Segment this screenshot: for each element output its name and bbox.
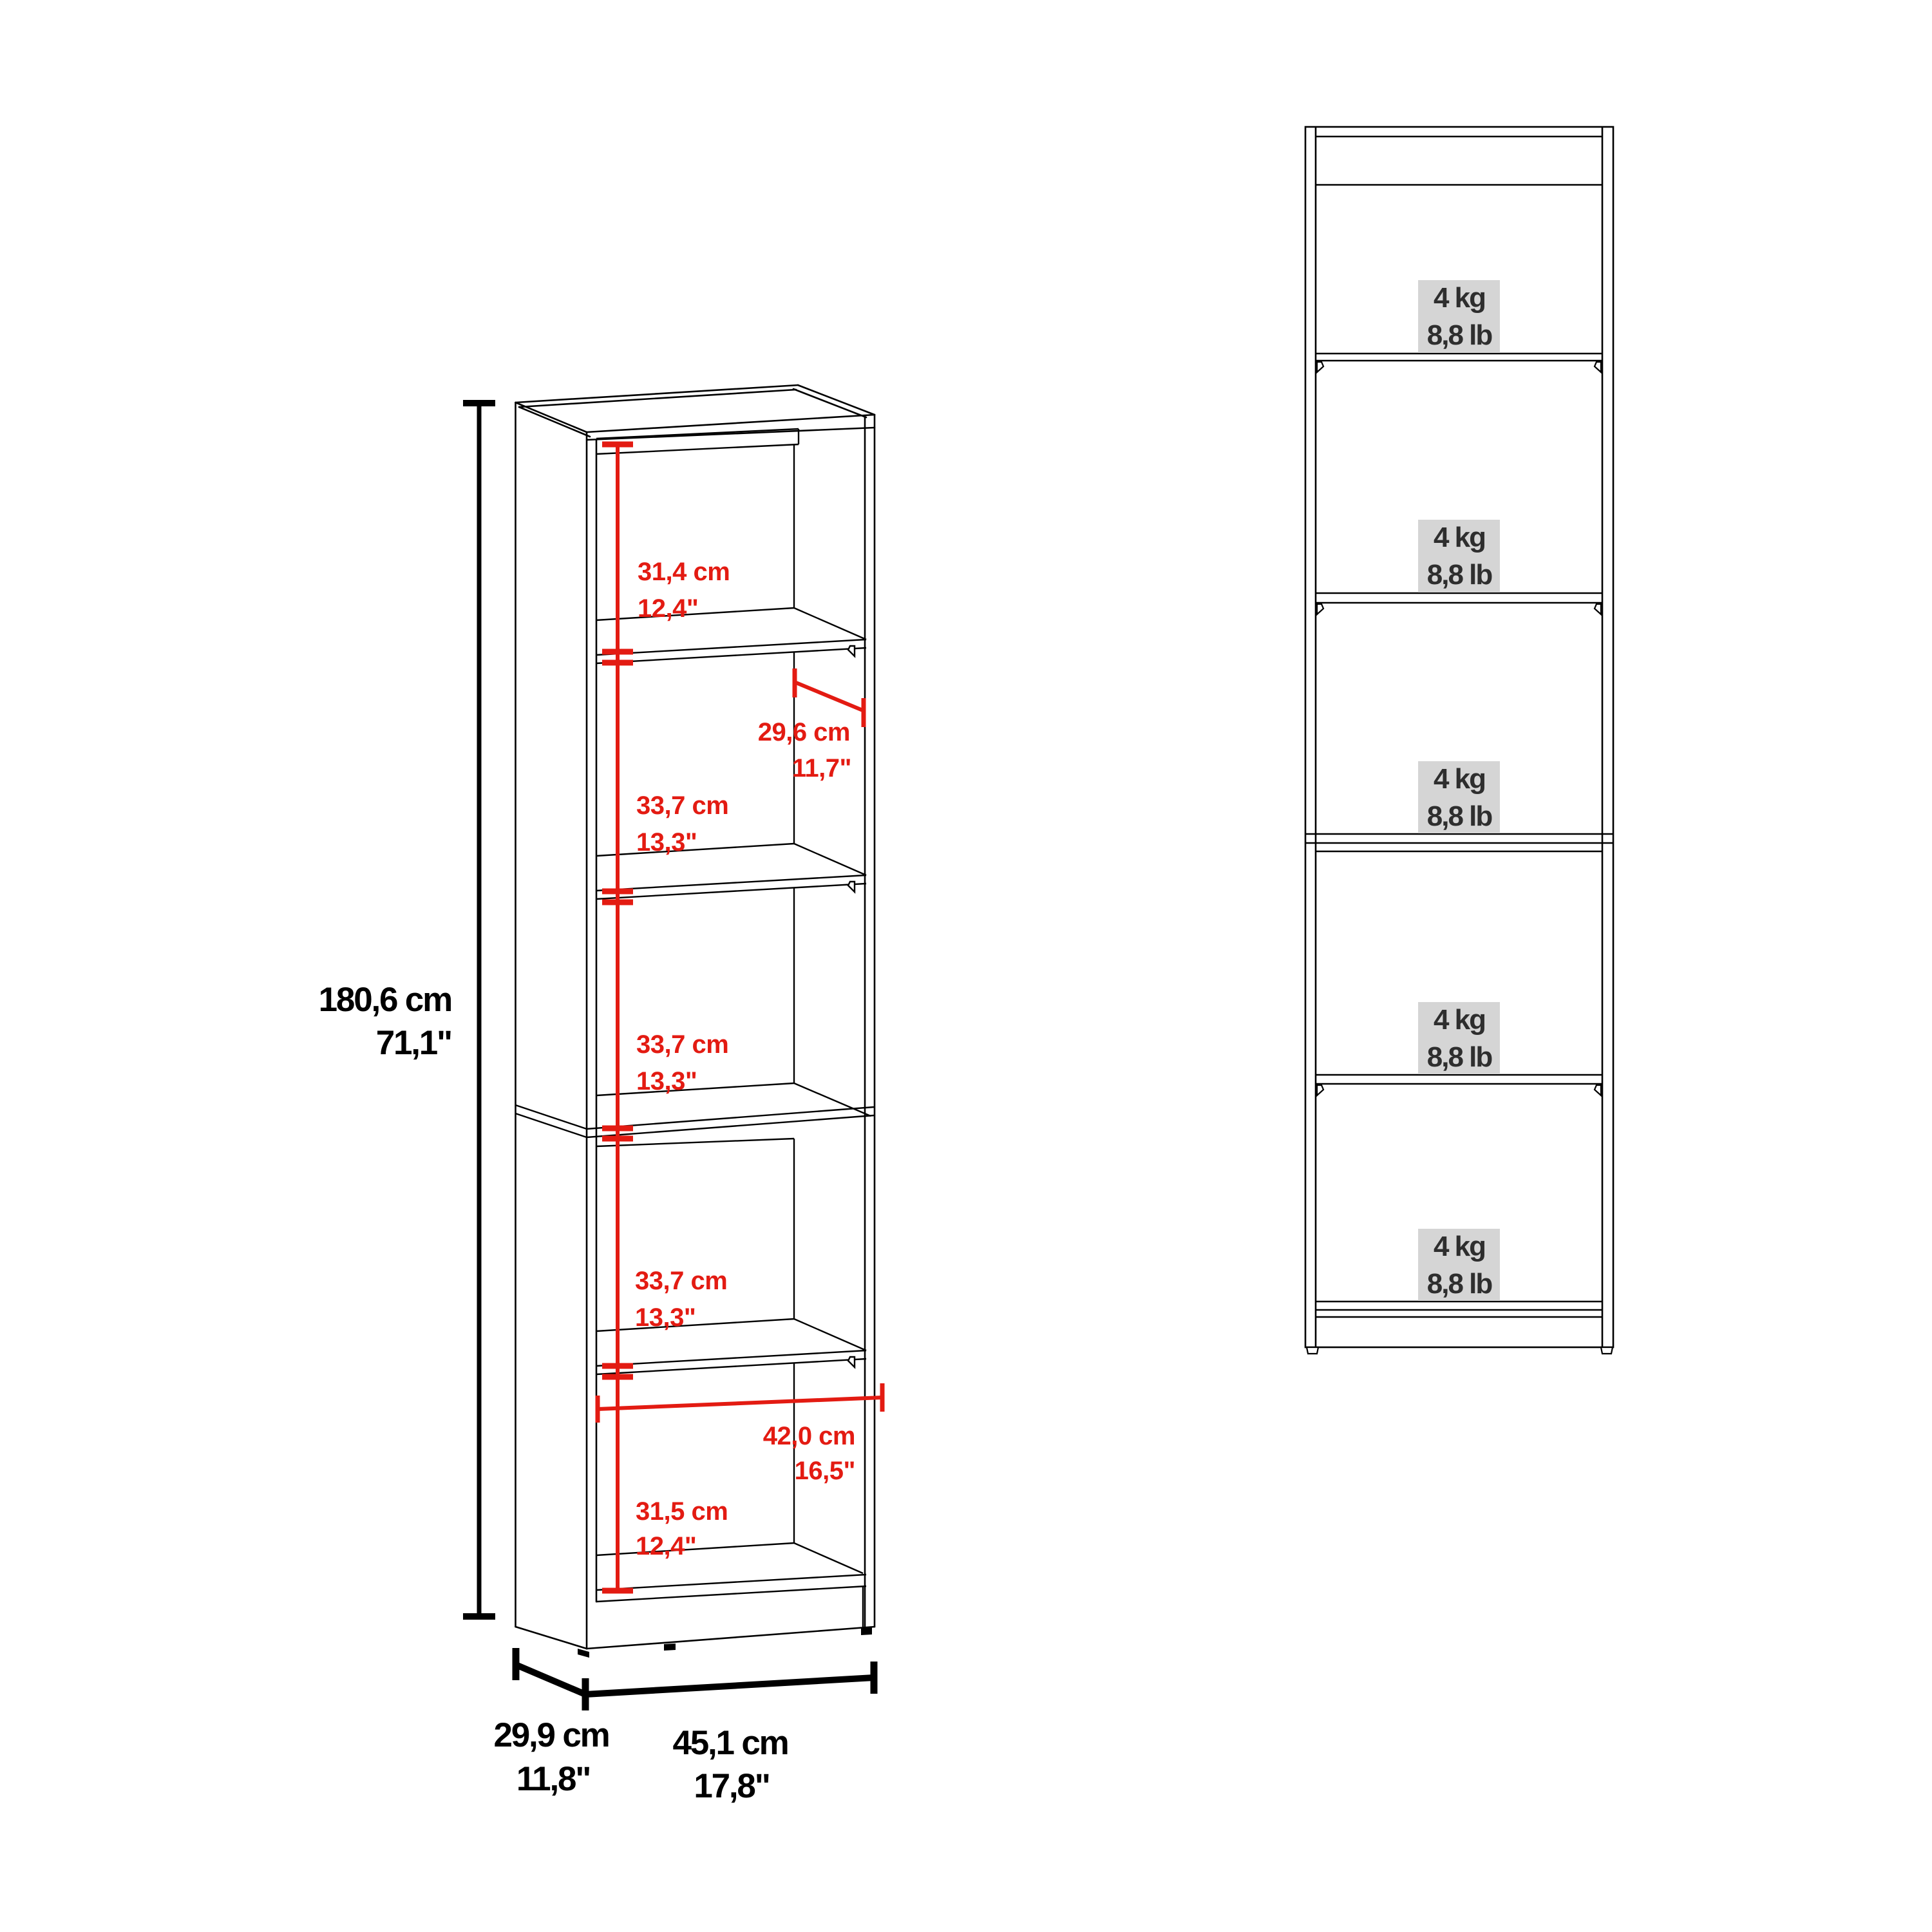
svg-text:31,4 cm: 31,4 cm (638, 558, 730, 586)
svg-text:8,8 lb: 8,8 lb (1427, 800, 1493, 832)
svg-text:8,8 lb: 8,8 lb (1427, 1268, 1493, 1300)
svg-text:29,6 cm: 29,6 cm (758, 718, 850, 746)
svg-text:12,4": 12,4" (638, 594, 698, 623)
svg-text:8,8 lb: 8,8 lb (1427, 319, 1493, 351)
svg-text:13,3": 13,3" (636, 828, 697, 857)
svg-text:13,3": 13,3" (635, 1303, 696, 1332)
svg-text:8,8 lb: 8,8 lb (1427, 559, 1493, 591)
svg-text:4 kg: 4 kg (1434, 763, 1485, 795)
svg-text:33,7 cm: 33,7 cm (635, 1267, 727, 1295)
svg-text:31,5 cm: 31,5 cm (636, 1497, 728, 1526)
svg-text:4 kg: 4 kg (1434, 1231, 1485, 1262)
svg-text:180,6 cm: 180,6 cm (319, 981, 451, 1019)
svg-text:45,1 cm: 45,1 cm (672, 1724, 788, 1762)
svg-text:4 kg: 4 kg (1434, 522, 1485, 553)
svg-text:33,7 cm: 33,7 cm (636, 791, 728, 820)
svg-text:29,9 cm: 29,9 cm (493, 1716, 609, 1754)
svg-text:71,1": 71,1" (376, 1024, 451, 1062)
svg-text:17,8": 17,8" (694, 1767, 769, 1805)
svg-text:11,8": 11,8" (516, 1760, 590, 1798)
svg-text:16,5": 16,5" (795, 1457, 855, 1485)
svg-text:4 kg: 4 kg (1434, 282, 1485, 314)
svg-text:42,0 cm: 42,0 cm (763, 1422, 855, 1450)
svg-text:13,3": 13,3" (636, 1067, 697, 1095)
svg-text:33,7 cm: 33,7 cm (636, 1030, 728, 1059)
svg-text:11,7": 11,7" (792, 754, 851, 782)
svg-text:12,4": 12,4" (636, 1532, 696, 1560)
svg-text:4 kg: 4 kg (1434, 1004, 1485, 1036)
svg-text:8,8 lb: 8,8 lb (1427, 1041, 1493, 1073)
